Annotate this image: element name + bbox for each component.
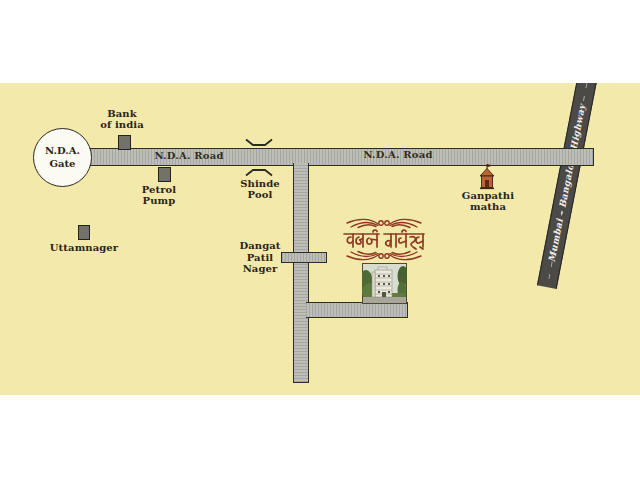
- dangat-patil-nagar-road: [293, 163, 309, 383]
- mumbai-bangalore-highway-road: Mumbai - Bangalore Highway: [537, 83, 597, 289]
- dangat-label-line2: Patil: [228, 252, 292, 264]
- nda-road-label-west: N.D.A. Road: [148, 150, 230, 161]
- dangat-label-line3: Nager: [228, 263, 292, 275]
- ganpathi-matha-label: Ganpathi matha: [456, 190, 520, 212]
- bank-label-line2: of india: [90, 119, 154, 130]
- uttamnager-label: Uttamnager: [38, 242, 130, 253]
- nda-gate-label-line2: Gate: [49, 158, 75, 171]
- samarth-heights-logo: [342, 217, 426, 262]
- ganpathi-label-line2: matha: [456, 201, 520, 212]
- nda-gate-circle: N.D.A. Gate: [33, 128, 92, 187]
- ganpathi-label-line1: Ganpathi: [456, 190, 520, 201]
- petrol-label-line1: Petrol: [127, 184, 191, 195]
- highway-label: Mumbai - Bangalore Highway: [547, 103, 587, 263]
- petrol-pump-marker: [158, 167, 171, 182]
- shinde-pool-label: Shinde Pool: [228, 178, 292, 200]
- bridge-symbol-lower: [245, 168, 273, 177]
- building-photo: [362, 263, 407, 304]
- bank-of-india-label: Bank of india: [90, 108, 154, 130]
- bridge-symbol-upper: [245, 138, 273, 147]
- dangat-label-line1: Dangat: [228, 240, 292, 252]
- access-lane-to-site: [306, 302, 408, 318]
- petrol-pump-label: Petrol Pump: [127, 184, 191, 206]
- bank-label-line1: Bank: [90, 108, 154, 119]
- temple-icon: [477, 163, 497, 190]
- uttamnager-marker: [78, 225, 90, 240]
- bank-of-india-marker: [118, 135, 131, 150]
- dangat-patil-nager-label: Dangat Patil Nager: [228, 240, 292, 275]
- logo-flourish-top-icon: [342, 217, 426, 229]
- shinde-label-line2: Pool: [228, 189, 292, 200]
- logo-flourish-bottom-icon: [342, 250, 426, 262]
- nda-gate-label-line1: N.D.A.: [45, 145, 80, 158]
- map-canvas: Mumbai - Bangalore Highway N.D.A. Gate N…: [0, 83, 640, 395]
- site-location-map: Mumbai - Bangalore Highway N.D.A. Gate N…: [0, 0, 640, 480]
- shinde-label-line1: Shinde: [228, 178, 292, 189]
- petrol-label-line2: Pump: [127, 195, 191, 206]
- logo-devanagari-text: [342, 229, 426, 250]
- nda-road-label-east: N.D.A. Road: [357, 149, 439, 160]
